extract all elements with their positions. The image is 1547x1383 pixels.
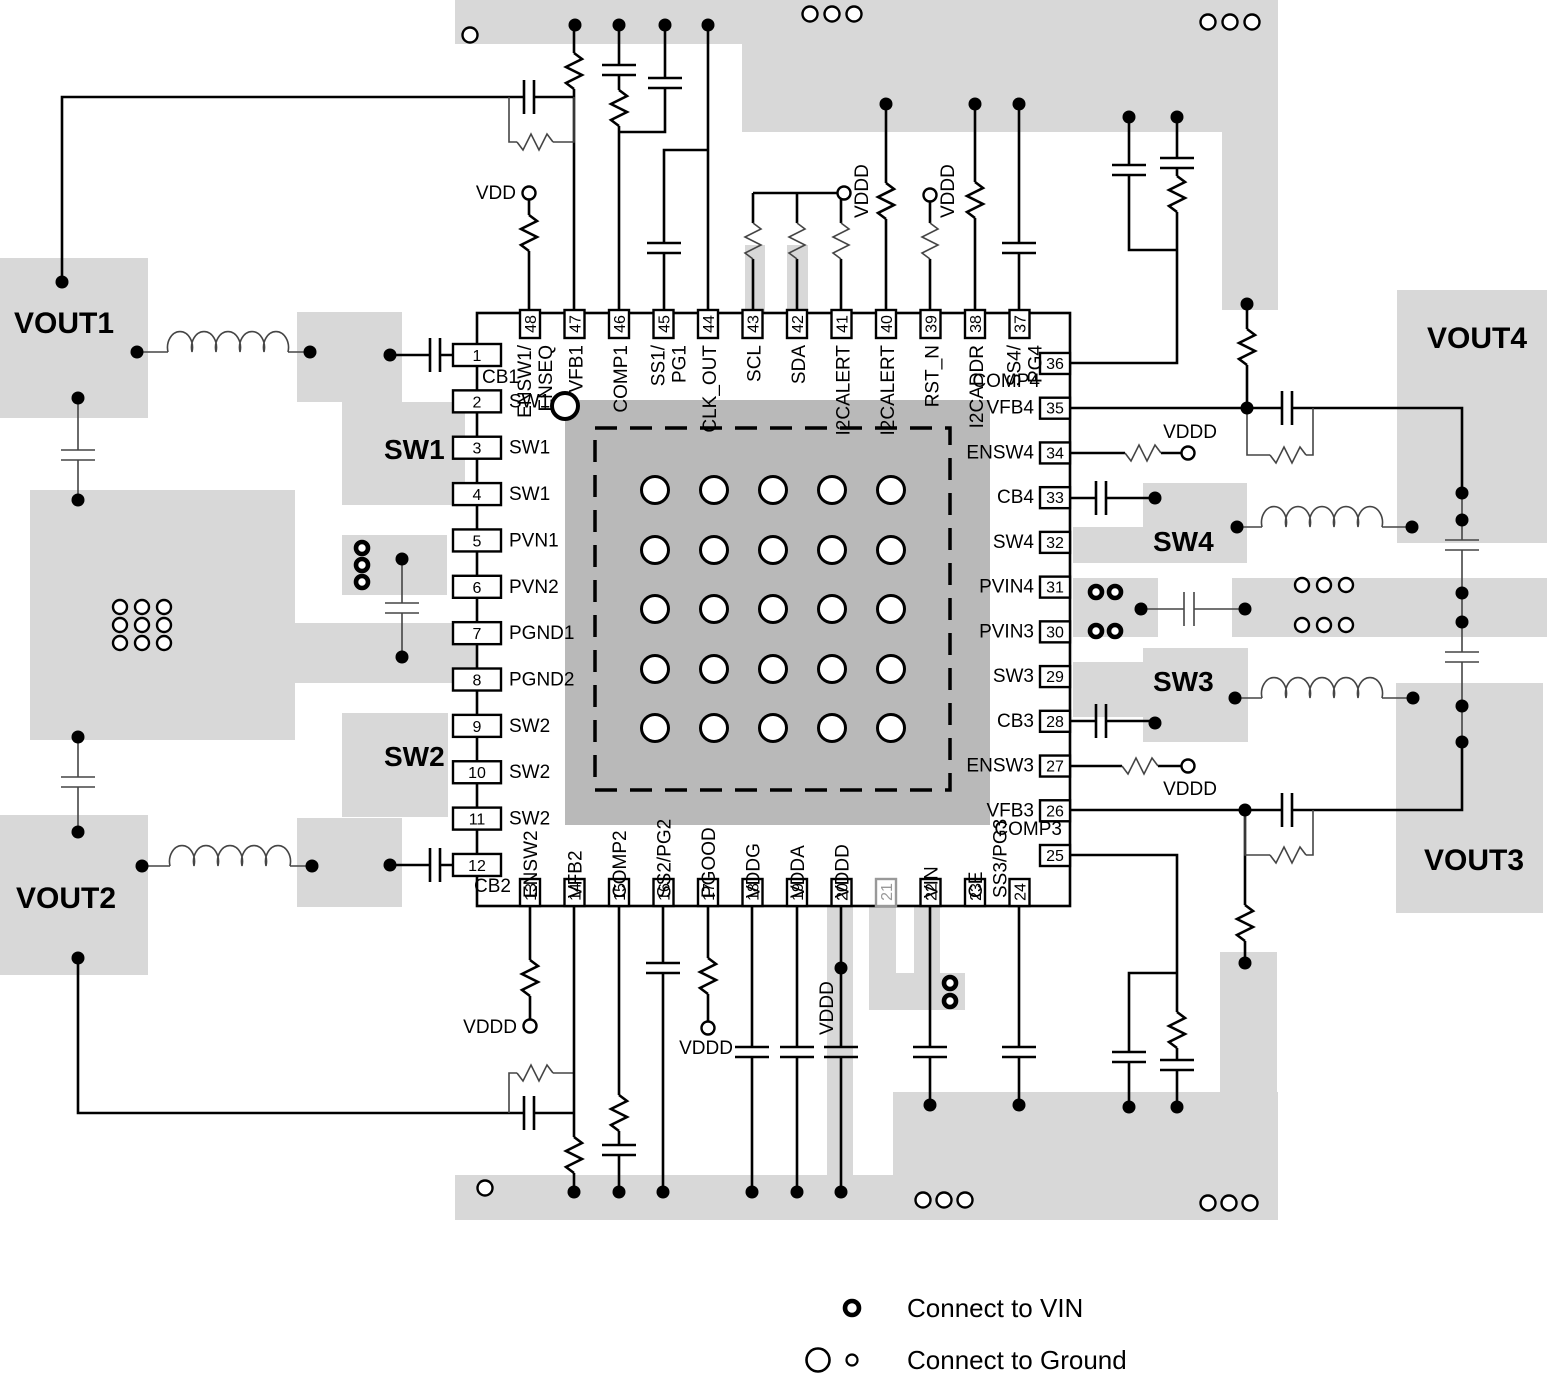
- pin-41-i2calert: 41I2CALERT: [832, 310, 855, 435]
- pin-16-ss2-pg2: 16SS2/PG2: [654, 819, 676, 906]
- capacitor: [1282, 391, 1292, 425]
- pin-name: VFB4: [986, 398, 1034, 419]
- pin-name: SDA: [789, 345, 810, 384]
- pin-name: SW1: [509, 484, 550, 505]
- pin-7-pgnd1: 7PGND1: [453, 622, 574, 644]
- pin-name: SW2: [509, 809, 550, 830]
- pcb-layout-page: 1CB12SW13SW14SW15PVN16PVN27PGND18PGND29S…: [0, 0, 1547, 1378]
- pin-name: PGOOD: [699, 827, 720, 898]
- sw1-label: SW1: [384, 434, 445, 465]
- pin-name: PG4: [1026, 345, 1047, 383]
- vout2-label: VOUT2: [16, 882, 116, 915]
- vddd-terminal: [924, 189, 937, 202]
- resistor: [1169, 176, 1185, 212]
- inductor: [168, 332, 289, 352]
- legend-ground-label: Connect to Ground: [907, 1345, 1127, 1375]
- pin-number: 37: [1013, 315, 1030, 333]
- legend: Connect to VIN Connect to Ground: [807, 1293, 1127, 1375]
- pin-name: SW2: [509, 716, 550, 737]
- capacitor: [1160, 158, 1194, 168]
- resistor: [878, 183, 894, 219]
- vdd-label: VDD: [476, 183, 516, 204]
- pin-number: 43: [746, 315, 763, 333]
- pin-42-sda: 42SDA: [787, 310, 810, 384]
- pin-name: PVN2: [509, 577, 559, 598]
- pin-name: SS1/: [649, 344, 670, 386]
- pin-name: SW2: [509, 762, 550, 783]
- resistor: [700, 958, 716, 994]
- vddd-label: VDDD: [463, 1017, 517, 1038]
- pin-number: 4: [473, 487, 482, 504]
- pin-name: I2CADDR: [967, 345, 988, 428]
- pin-number: 45: [657, 315, 674, 333]
- capacitor: [524, 1096, 534, 1130]
- pin-22-vin: 22VIN: [921, 866, 943, 906]
- pin-8-pgnd2: 8PGND2: [453, 669, 574, 691]
- pin-20-vddd: 20VDDD: [832, 844, 854, 906]
- sw3-label: SW3: [1153, 666, 1214, 697]
- vddd-terminal: [524, 1020, 537, 1033]
- resistor: [1125, 445, 1161, 461]
- pin-number: 39: [924, 315, 941, 333]
- pin-name: SW1: [509, 438, 550, 459]
- pin-name: SS2/PG2: [655, 819, 676, 898]
- capacitor: [602, 1145, 636, 1155]
- capacitor: [385, 603, 419, 613]
- pin-4-sw1: 4SW1: [453, 483, 550, 505]
- capacitor: [1002, 243, 1036, 253]
- pin-name: SCL: [745, 345, 766, 382]
- pin-14-vfb2: 14VFB2: [565, 850, 587, 906]
- pin-name: VDDG: [744, 843, 765, 898]
- pin-number: 6: [473, 580, 482, 597]
- pin-3-sw1: 3SW1: [453, 437, 550, 459]
- pin-35-vfb4: 35VFB4: [986, 398, 1070, 419]
- pin-name: CB3: [997, 711, 1034, 732]
- capacitor: [602, 65, 636, 75]
- pin-number: 34: [1046, 445, 1064, 462]
- pin-number: 28: [1046, 714, 1064, 731]
- inductor: [1262, 678, 1383, 698]
- pin-name: ENSW1/: [515, 344, 536, 418]
- pin-name: CB1: [482, 367, 519, 388]
- resistor: [1270, 447, 1306, 463]
- pin-name: ENSW2: [521, 830, 542, 898]
- pin-23-ce: 23CE: [965, 872, 987, 906]
- vddd-label: VDDD: [817, 981, 838, 1035]
- resistor: [1270, 847, 1306, 863]
- capacitor: [1184, 592, 1194, 626]
- pin-31-pvin4: 31PVIN4: [979, 577, 1070, 598]
- sw2-label: SW2: [384, 741, 445, 772]
- pin-name: VIN: [922, 866, 943, 898]
- pin-name: VFB3: [986, 800, 1034, 821]
- pin-name: CE: [966, 872, 987, 898]
- pin-number: 1: [473, 348, 482, 365]
- resistor: [611, 1095, 627, 1131]
- pin-number: 9: [473, 719, 482, 736]
- pin-number: 31: [1046, 580, 1064, 597]
- pin-number: 7: [473, 626, 482, 643]
- pin-43-scl: 43SCL: [743, 310, 766, 382]
- pin-name: RST_N: [923, 345, 944, 407]
- pin-number: 48: [523, 315, 540, 333]
- resistor: [1122, 758, 1158, 774]
- resistor: [922, 223, 938, 259]
- pin-name: VDDA: [788, 845, 809, 898]
- pin-30-pvin3: 30PVIN3: [979, 621, 1070, 642]
- vddd-terminal: [838, 187, 851, 200]
- resistor: [517, 134, 553, 150]
- legend-ground-via-large-icon: [807, 1349, 830, 1372]
- vout1-label: VOUT1: [14, 307, 114, 340]
- pin-name: I2CALERT: [878, 345, 899, 436]
- capacitor: [61, 777, 95, 787]
- pin-name: PVIN3: [979, 621, 1034, 642]
- pcb-layout-diagram: 1CB12SW13SW14SW15PVN16PVN27PGND18PGND29S…: [0, 0, 1547, 1378]
- resistor: [1239, 329, 1255, 365]
- pin-name: CB4: [997, 487, 1034, 508]
- pin-34-ensw4: 34ENSW4: [966, 442, 1070, 463]
- pin-number: 10: [468, 765, 486, 782]
- resistor: [833, 223, 849, 259]
- capacitor: [1002, 1047, 1036, 1057]
- pin-19-vdda: 19VDDA: [787, 845, 809, 906]
- pin-number: 44: [701, 315, 718, 333]
- pin-name: VFB1: [567, 345, 588, 393]
- capacitor: [1112, 165, 1146, 175]
- capacitor: [913, 1047, 947, 1057]
- pin-number: 5: [473, 533, 482, 550]
- vdd-terminal: [523, 187, 536, 200]
- pin-number: 42: [790, 315, 807, 333]
- vddd-label: VDDD: [1163, 422, 1217, 443]
- pin-26-vfb3: 26VFB3: [986, 800, 1070, 821]
- vout3-label: VOUT3: [1424, 844, 1524, 877]
- pin-21: 21: [876, 879, 896, 906]
- capacitor: [646, 963, 680, 973]
- pin-39-rst-n: 39RST_N: [921, 310, 944, 407]
- resistor: [967, 182, 983, 218]
- vddd-label: VDDD: [1163, 779, 1217, 800]
- pin-9-sw2: 9SW2: [453, 715, 550, 737]
- pin-number: 3: [473, 441, 482, 458]
- pin-name: PGND2: [509, 670, 574, 691]
- legend-vin-via-icon: [845, 1301, 859, 1315]
- pin-name: SW4: [993, 532, 1035, 553]
- capacitor: [1112, 1052, 1146, 1062]
- pin-27-ensw3: 27ENSW3: [966, 756, 1070, 777]
- pin-name: ENSW4: [966, 442, 1034, 463]
- pin-name: PVIN4: [979, 577, 1034, 598]
- pin-number: 11: [469, 812, 486, 829]
- pin-13-ensw2: 13ENSW2: [520, 830, 542, 906]
- vddd-terminal: [1182, 447, 1195, 460]
- resistor: [611, 90, 627, 126]
- pin-32-sw4: 32SW4: [993, 532, 1070, 553]
- resistor: [517, 1065, 553, 1081]
- pin-name: PG1: [670, 345, 691, 383]
- pin-name: COMP1: [611, 345, 632, 413]
- pin-number: 38: [968, 315, 985, 333]
- pin-18-vddg: 18VDDG: [743, 843, 765, 906]
- pin-name: CB2: [474, 876, 511, 897]
- capacitor: [735, 1047, 769, 1057]
- inductor: [170, 846, 291, 866]
- pin-name: COMP2: [610, 830, 631, 898]
- pin-name: VDDD: [833, 844, 854, 898]
- pin-number: 2: [473, 394, 482, 411]
- pin-17-pgood: 17PGOOD: [698, 827, 720, 906]
- resistor: [566, 53, 582, 89]
- pin-number: 24: [1013, 883, 1030, 901]
- pin-15-comp2: 15COMP2: [609, 830, 631, 906]
- pin-name: ENSEQ: [536, 345, 557, 412]
- pin-40-i2calert: 40I2CALERT: [876, 310, 899, 435]
- resistor: [566, 1137, 582, 1173]
- pin-name: PGND1: [509, 623, 574, 644]
- legend-vin-label: Connect to VIN: [907, 1293, 1083, 1323]
- pin-44-clk-out: 44CLK_OUT: [698, 310, 721, 433]
- pin-33-cb4: 33CB4: [997, 487, 1070, 508]
- pin-47-vfb1: 47VFB1: [565, 310, 588, 393]
- pin-number: 25: [1046, 848, 1064, 865]
- pin-number: 26: [1046, 803, 1064, 820]
- capacitor: [524, 80, 534, 114]
- capacitor: [61, 450, 95, 460]
- pin-name: ENSW3: [966, 756, 1034, 777]
- pin-number: 36: [1046, 356, 1064, 373]
- capacitor: [430, 848, 440, 882]
- pin-name: SS4/: [1005, 344, 1026, 386]
- pin-10-sw2: 10SW2: [453, 761, 550, 783]
- vddd-label: VDDD: [679, 1038, 733, 1059]
- vddd-terminal: [702, 1022, 715, 1035]
- pin-number: 32: [1046, 535, 1064, 552]
- pin-number: 27: [1046, 759, 1064, 776]
- sw4-label: SW4: [1153, 526, 1214, 557]
- vout3-pour: [1396, 683, 1543, 913]
- resistor: [522, 960, 538, 996]
- vddd-label: VDDD: [938, 164, 959, 218]
- capacitor: [780, 1047, 814, 1057]
- capacitor: [1445, 652, 1479, 662]
- pin-number: 47: [568, 315, 585, 333]
- pin-29-sw3: 29SW3: [993, 666, 1070, 687]
- pin-number: 29: [1046, 669, 1064, 686]
- pin-name: SW3: [993, 666, 1034, 687]
- pin-name: PVN1: [509, 530, 559, 551]
- capacitor: [648, 78, 682, 88]
- pin-46-comp1: 46COMP1: [609, 310, 632, 413]
- pin-11-sw2: 11SW2: [453, 808, 550, 830]
- pin-number: 8: [473, 673, 482, 690]
- capacitor: [1160, 1060, 1194, 1070]
- legend-ground-via-small-icon: [847, 1355, 858, 1366]
- pin-number: 40: [879, 315, 896, 333]
- resistor: [521, 215, 537, 251]
- pin-number: 46: [612, 315, 629, 333]
- pin-name: I2CALERT: [834, 345, 855, 436]
- capacitor: [647, 243, 681, 253]
- pin-number: 35: [1046, 401, 1064, 418]
- vout4-label: VOUT4: [1427, 322, 1527, 355]
- capacitor: [1282, 793, 1292, 827]
- pin-number: 21: [879, 883, 896, 901]
- pin-name: VFB2: [566, 850, 587, 898]
- resistor: [1237, 905, 1253, 941]
- pin-number: 33: [1046, 490, 1064, 507]
- resistor: [1169, 1012, 1185, 1048]
- vddd-terminal: [1182, 760, 1195, 773]
- pin-number: 41: [835, 315, 852, 333]
- pin-number: 30: [1046, 624, 1064, 641]
- pin-38-i2caddr: 38I2CADDR: [965, 310, 988, 428]
- ground-plane-bottom-left: [455, 1175, 893, 1220]
- pin-28-cb3: 28CB3: [997, 711, 1070, 732]
- capacitor: [430, 338, 440, 372]
- pin-name: CLK_OUT: [700, 345, 721, 433]
- vddd-label: VDDD: [852, 164, 873, 218]
- pin-number: 12: [468, 858, 486, 875]
- inductor: [1262, 507, 1383, 527]
- capacitor: [1096, 481, 1106, 515]
